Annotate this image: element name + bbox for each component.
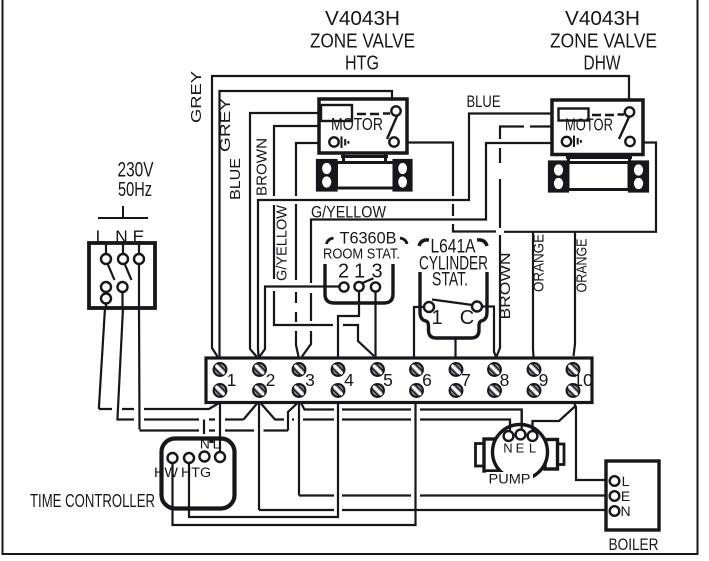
svg-text:HW: HW — [154, 465, 178, 480]
svg-text:E: E — [133, 227, 145, 247]
svg-text:L: L — [622, 473, 630, 489]
svg-text:G/YELLOW: G/YELLOW — [311, 203, 386, 222]
svg-text:3: 3 — [371, 261, 382, 283]
svg-text:1: 1 — [431, 307, 442, 329]
svg-text:4: 4 — [344, 370, 354, 390]
svg-text:8: 8 — [500, 370, 510, 390]
svg-text:L: L — [213, 437, 221, 452]
svg-text:2: 2 — [266, 370, 276, 390]
svg-text:E: E — [621, 488, 630, 504]
svg-text:V4043H: V4043H — [325, 8, 400, 30]
svg-text:6: 6 — [422, 370, 432, 390]
svg-text:PUMP: PUMP — [489, 472, 531, 487]
svg-text:L: L — [96, 227, 106, 247]
svg-text:STAT.: STAT. — [432, 270, 468, 291]
svg-text:BLUE: BLUE — [227, 158, 244, 200]
svg-text:10: 10 — [573, 370, 593, 390]
svg-text:N: N — [200, 437, 210, 452]
svg-text:3: 3 — [305, 370, 315, 390]
svg-text:MOTOR: MOTOR — [331, 114, 383, 134]
svg-text:ORANGE: ORANGE — [531, 234, 548, 292]
svg-text:GREY: GREY — [188, 71, 205, 123]
svg-text:TIME CONTROLLER: TIME CONTROLLER — [30, 490, 155, 511]
svg-text:1: 1 — [227, 370, 237, 390]
svg-text:G/YELLOW: G/YELLOW — [274, 204, 291, 281]
svg-text:HTG: HTG — [345, 53, 379, 75]
svg-text:DHW: DHW — [584, 53, 621, 75]
svg-text:E: E — [516, 441, 525, 456]
svg-text:1: 1 — [354, 261, 365, 283]
svg-text:BROWN: BROWN — [254, 138, 271, 196]
svg-text:N: N — [620, 503, 630, 519]
svg-text:7: 7 — [461, 370, 471, 390]
svg-text:BROWN: BROWN — [497, 253, 514, 320]
svg-text:ORANGE: ORANGE — [574, 239, 591, 293]
svg-text:5: 5 — [383, 370, 393, 390]
svg-text:MOTOR: MOTOR — [565, 115, 613, 135]
svg-text:C: C — [460, 307, 474, 329]
svg-text:L: L — [529, 441, 536, 456]
svg-text:ZONE VALVE: ZONE VALVE — [310, 31, 415, 53]
svg-text:T6360B: T6360B — [340, 229, 397, 248]
svg-text:50Hz: 50Hz — [118, 179, 152, 201]
svg-text:N: N — [503, 441, 512, 456]
svg-text:9: 9 — [539, 370, 549, 390]
svg-text:BOILER: BOILER — [609, 535, 659, 554]
svg-text:GREY: GREY — [217, 98, 234, 152]
svg-text:N: N — [115, 227, 128, 247]
svg-text:ZONE VALVE: ZONE VALVE — [550, 31, 657, 53]
svg-text:V4043H: V4043H — [565, 8, 640, 30]
svg-text:HTG: HTG — [181, 465, 211, 480]
svg-text:BLUE: BLUE — [467, 93, 501, 111]
svg-text:2: 2 — [338, 261, 349, 283]
